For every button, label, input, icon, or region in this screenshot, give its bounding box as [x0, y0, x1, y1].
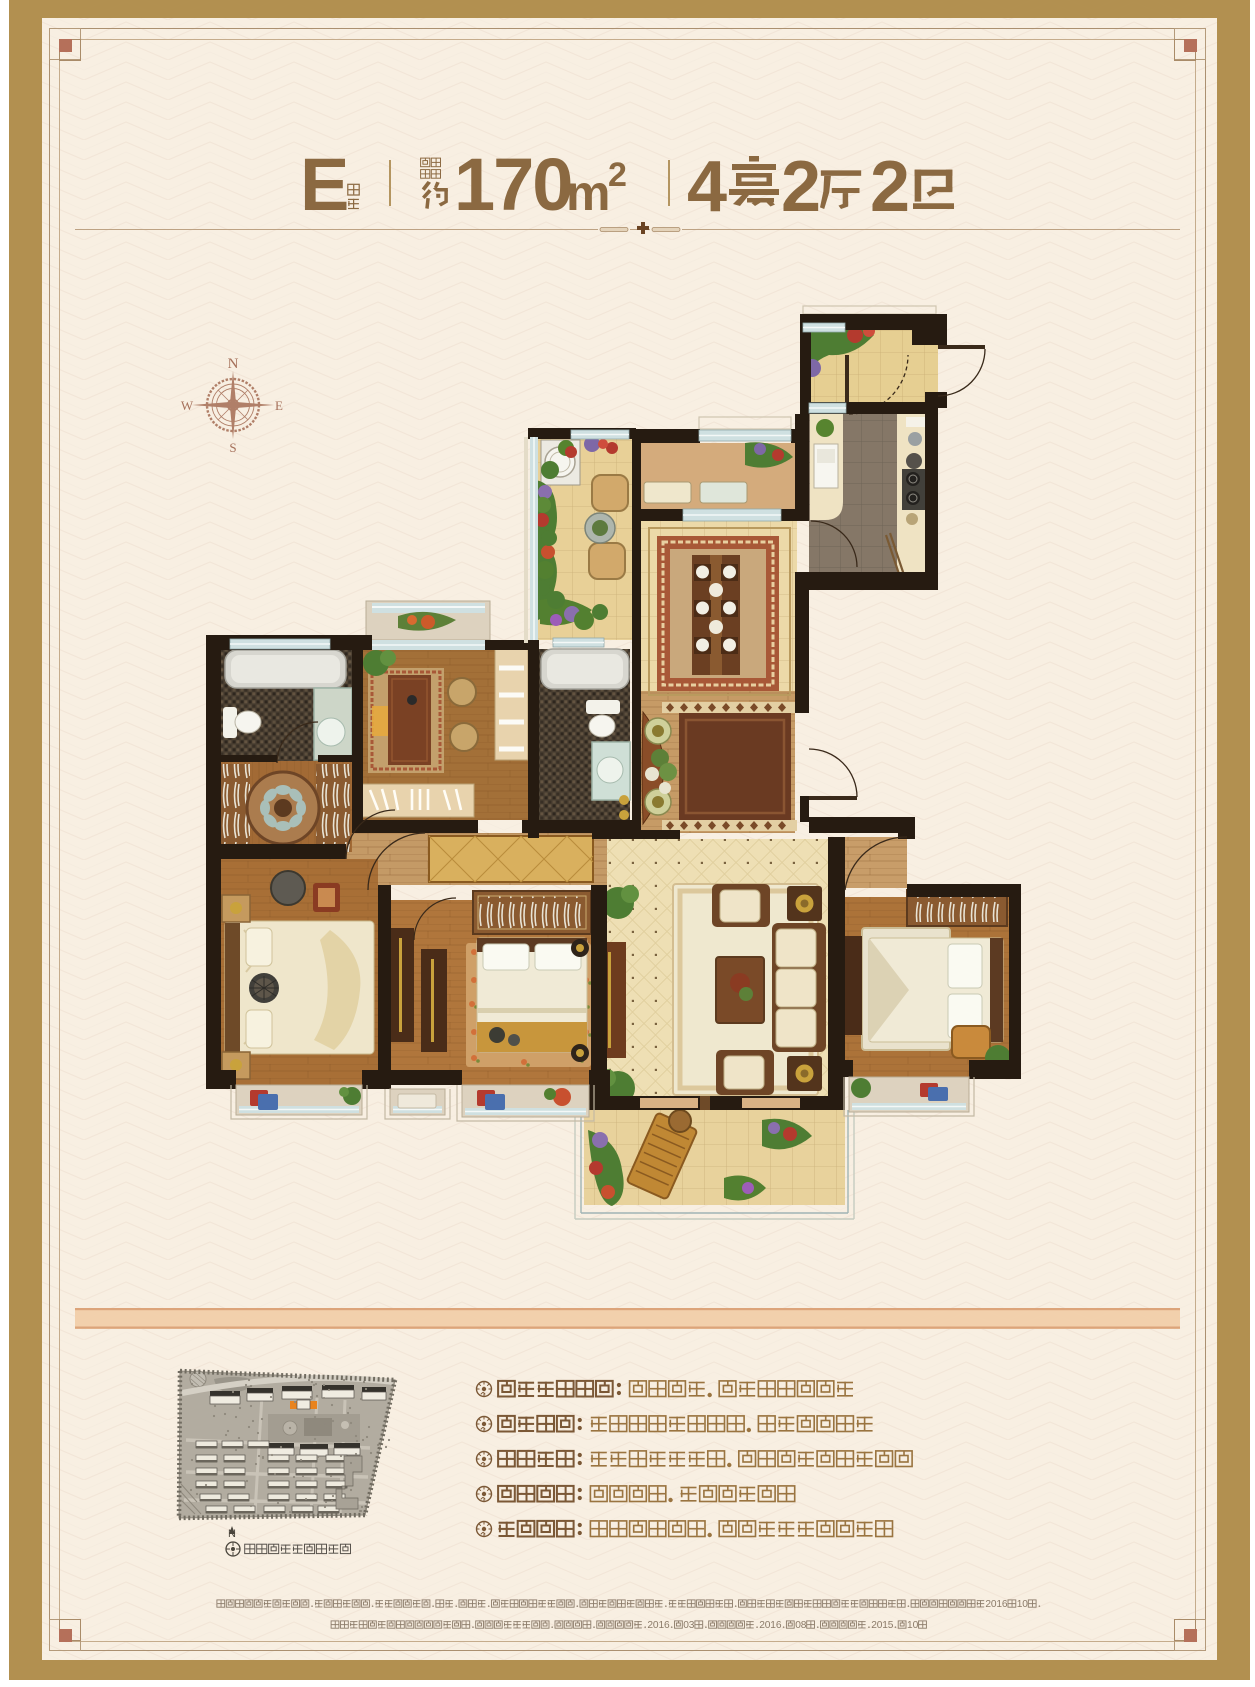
svg-text:E: E: [300, 143, 349, 226]
svg-text:5: 5: [888, 1620, 894, 1631]
svg-text:E: E: [275, 398, 283, 413]
svg-text:2: 2: [870, 147, 910, 227]
svg-text:N: N: [228, 356, 239, 372]
svg-text:6: 6: [664, 1620, 670, 1631]
svg-text:W: W: [181, 398, 194, 413]
svg-text:8: 8: [801, 1620, 807, 1631]
svg-text:3: 3: [689, 1620, 695, 1631]
svg-text:6: 6: [776, 1620, 782, 1631]
svg-text:0: 0: [1022, 1599, 1028, 1610]
svg-text:2: 2: [608, 156, 627, 194]
svg-text:170: 170: [454, 143, 571, 226]
svg-text:S: S: [229, 440, 236, 455]
svg-text:m: m: [566, 165, 610, 221]
svg-text:4: 4: [687, 147, 727, 227]
svg-text:2: 2: [781, 147, 821, 227]
svg-text:0: 0: [913, 1620, 919, 1631]
svg-text:6: 6: [1002, 1599, 1008, 1610]
